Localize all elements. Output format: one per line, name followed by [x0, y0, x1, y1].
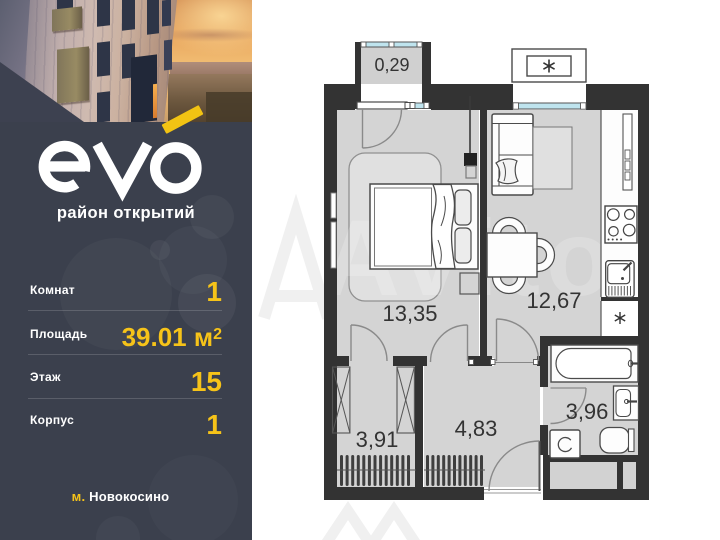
svg-text:0,29: 0,29: [374, 55, 409, 75]
svg-text:12,67: 12,67: [526, 288, 581, 313]
svg-text:4,83: 4,83: [455, 416, 498, 441]
svg-text:13,35: 13,35: [382, 301, 437, 326]
svg-text:3,91: 3,91: [356, 427, 399, 452]
svg-text:3,96: 3,96: [566, 399, 609, 424]
